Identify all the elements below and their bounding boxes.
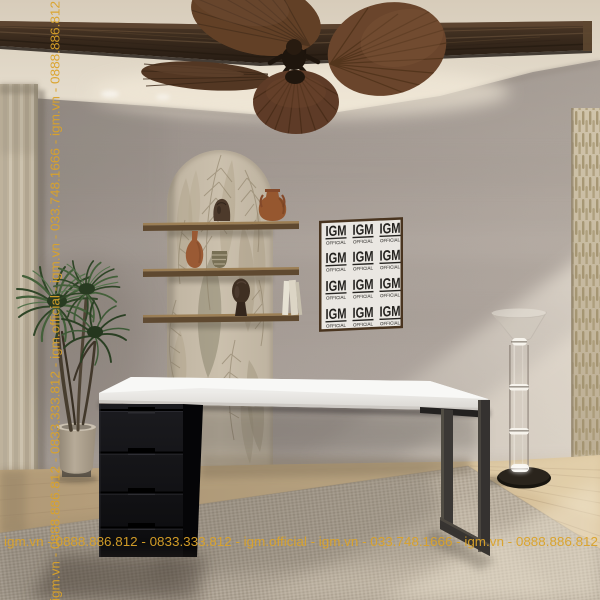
svg-text:OFFICIAL: OFFICIAL <box>380 264 400 270</box>
svg-text:OFFICIAL: OFFICIAL <box>326 240 346 246</box>
svg-text:igm.vn - 0888.886.812 - 0833.3: igm.vn - 0888.886.812 - 0833.333.812 - i… <box>48 1 63 600</box>
svg-text:OFFICIAL: OFFICIAL <box>353 294 373 300</box>
svg-text:OFFICIAL: OFFICIAL <box>380 237 400 243</box>
svg-text:OFFICIAL: OFFICIAL <box>326 295 346 301</box>
svg-text:OFFICIAL: OFFICIAL <box>380 320 400 326</box>
svg-text:igm.vn - 0888.886.812 - 0833.3: igm.vn - 0888.886.812 - 0833.333.812 - i… <box>4 534 598 549</box>
svg-text:OFFICIAL: OFFICIAL <box>353 239 373 245</box>
svg-text:OFFICIAL: OFFICIAL <box>353 322 373 328</box>
svg-text:OFFICIAL: OFFICIAL <box>326 323 346 329</box>
svg-text:OFFICIAL: OFFICIAL <box>326 267 346 273</box>
svg-text:OFFICIAL: OFFICIAL <box>353 266 373 272</box>
svg-text:OFFICIAL: OFFICIAL <box>380 292 400 298</box>
